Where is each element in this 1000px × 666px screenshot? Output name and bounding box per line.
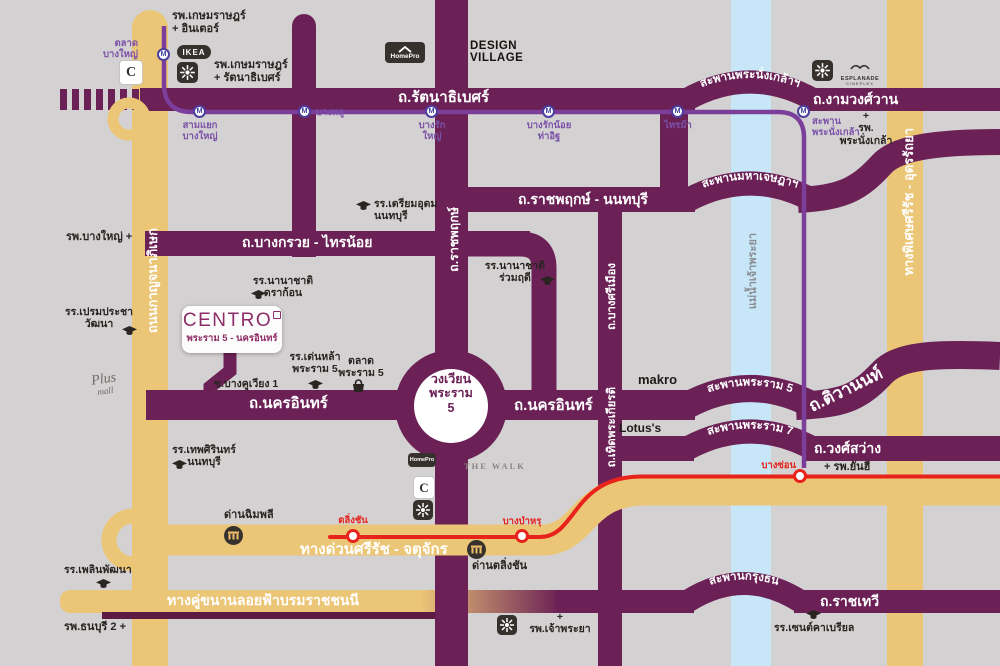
school-icon-st-gabriel [806, 610, 821, 620]
mrt-label-talad-bang-yai: ตลาด บางใหญ่ [90, 38, 138, 60]
place-makro: makro [638, 372, 677, 387]
road-label-ngamwongwan: ถ.งามวงศ์วาน [813, 91, 898, 108]
esplanade-logo-subtext: CINEPLEX [838, 82, 882, 86]
road-label-borommaratchachonnani: ทางคู่ขนานลอยฟ้าบรมราชชนนี [167, 592, 359, 609]
road-label-si-rat-chatuchak: ทางด่วนศรีรัช - จตุจักร [300, 541, 448, 559]
toll-label-taling-chan: ด่านตลิ่งชัน [472, 560, 527, 573]
school-icon-ploen-phatthana [96, 579, 111, 589]
homepro-logo: HomePro [385, 42, 425, 63]
mrt-station-icon-sai-ma: M [671, 105, 684, 118]
place-kasemrad-inter: รพ.เกษมราษฎร์ + อินเตอร์ [172, 10, 246, 36]
bridge-rama5 [686, 389, 814, 407]
mrt-station-icon-sam-yaek-bang-yai: M [193, 105, 206, 118]
central-logo-rattanathibet: C [413, 476, 435, 499]
roundabout-label: วงเวียน พระราม 5 [414, 372, 488, 415]
esplanade-wings-icon [850, 63, 870, 71]
place-lotus: Lotus's [619, 421, 661, 435]
toll-icon-taling-chan [467, 540, 486, 559]
esplanade-logo: ESPLANADE CINEPLEX [838, 58, 882, 86]
market-icon-talad-rama5 [352, 379, 365, 393]
homepro-logo-text: HomePro [391, 53, 420, 60]
road-label-ratchaphruek-nonthaburi: ถ.ราชพฤกษ์ - นนทบุรี [518, 191, 648, 208]
centralplaza-sun-icon-chao-phraya [497, 615, 517, 635]
place-st-gabriel-school: รร.เซนต์คาเบรียล [774, 622, 854, 634]
road-label-bang-kruai-sai-noi: ถ.บางกรวย - ไทรน้อย [242, 234, 372, 251]
central-westgate-logo: C [119, 60, 143, 85]
centralplaza-sun-icon-westgate [177, 62, 198, 83]
mrt-station-icon-saphan-phra-nang-klao: M [797, 105, 810, 118]
school-icon-prem-pracha [122, 326, 137, 336]
centro-brand-text: CENTRO [183, 310, 272, 331]
place-ploen-phatthana-school: รร.เพลินพัฒนา [64, 564, 132, 576]
place-triam-udom-school: รร.เตรียมอุดม นนทบุรี [374, 198, 437, 223]
road-label-bang-si-mueang: ถ.บางศรีเมือง [603, 263, 621, 330]
srt-label-bang-bamru: บางบำหรุ [490, 516, 554, 527]
srt-label-bang-son: บางซ่อน [740, 460, 796, 471]
interchange-loop-bottom [109, 516, 157, 564]
road-label-wong-sawang: ถ.วงศ์สว่าง [814, 440, 881, 457]
toll-label-chimphli: ด่านฉิมพลี [224, 509, 274, 522]
bridge-krung-thon [688, 584, 800, 602]
road-soi-bang-khu-wiang [210, 352, 230, 401]
mrt-label-bang-phlu: บางพลู [316, 107, 344, 118]
river-label: แม่น้ำเจ้าพระยา [744, 233, 762, 309]
school-icon-denla [308, 380, 323, 390]
plus-mall-logo: Plus mall [91, 372, 119, 396]
mrt-station-icon-bang-phlu: M [298, 105, 311, 118]
srt-station-icon-taling-chan [346, 529, 360, 543]
road-label-kanchanaphisek: ถนนกาญจนาภิเษก [142, 228, 163, 333]
toll-icon-chimphli [224, 526, 243, 545]
school-icon-ruamrudee [540, 276, 555, 286]
road-label-ratchathewi: ถ.ราชเทวี [820, 593, 879, 610]
road-label-si-rat-udon-ratthaya: ทางพิเศษศรีรัช - อุดรรัถยา [898, 128, 919, 276]
mrt-label-sam-yaek-bang-yai: สามแยก บางใหญ่ [172, 120, 228, 142]
centro-brand: CENTRO [182, 310, 282, 332]
mrt-label-bang-rak-yai: บางรัก ใหญ่ [406, 120, 458, 142]
school-icon-dragon [251, 290, 266, 300]
centralplaza-sun-icon-rattanathibet [812, 60, 833, 81]
road-label-nakhon-in-east: ถ.นครอินทร์ [514, 397, 593, 415]
homepro-logo-small: HomePro [408, 453, 436, 467]
srt-station-icon-bang-bamru [515, 529, 529, 543]
place-phra-nang-klao-hospital: + รพ. พระนั่งเกล้า [830, 110, 902, 147]
place-ruamrudee-school: รร.นานาชาติ ร่วมฤดี [482, 260, 548, 285]
place-thonburi2-hospital: รพ.ธนบุรี 2 + [64, 621, 126, 634]
place-talad-rama5: ตลาด พระราม 5 [338, 355, 384, 380]
road-label-soi-bang-khu-wiang: ซ.บางคูเวียง 1 [214, 378, 278, 390]
map-canvas: สะพานพระนั่งเกล้าฯ สะพานมหาเจษฎาฯ สะพานพ… [0, 0, 1000, 666]
place-denla-school: รร.เด่นหล้า พระราม 5 [286, 351, 344, 376]
mrt-label-bang-rak-noi: บางรักน้อย ท่าอิฐ [515, 120, 583, 142]
srt-label-taling-chan: ตลิ่งชัน [325, 515, 381, 526]
mrt-station-icon-bang-rak-yai: M [425, 105, 438, 118]
centro-window-icon [273, 311, 281, 319]
mrt-station-icon-talad-bang-yai: M [157, 48, 170, 61]
bridge-rama7 [688, 432, 812, 449]
mrt-station-icon-bang-rak-noi: M [542, 105, 555, 118]
road-label-ratchaphruek: ถ.ราชพฤกษ์ [444, 207, 464, 272]
centro-project-badge: CENTRO พระราม 5 - นครอินทร์ [182, 306, 282, 353]
interchange-loop-top [113, 103, 145, 135]
ikea-logo: IKEA [177, 45, 211, 59]
place-yanhee-hospital: + รพ.ยันฮี [824, 461, 870, 474]
the-walk-logo: THE WALK [464, 461, 526, 471]
homepro-roof-icon [398, 46, 412, 53]
centralplaza-sun-icon-nakhon-in [413, 500, 433, 520]
place-design-village: DESIGN VILLAGE [470, 40, 523, 64]
place-bang-yai-hospital: รพ.บางใหญ่ + [66, 231, 132, 244]
place-chao-phraya-hospital: + รพ.เจ้าพระยา [524, 611, 596, 636]
centro-subtitle: พระราม 5 - นครอินทร์ [182, 331, 282, 346]
school-icon-triam-udom [356, 201, 371, 211]
mrt-label-sai-ma: ไทรม้า [654, 120, 702, 131]
road-label-rattanathibet: ถ.รัตนาธิเบศร์ [398, 89, 489, 107]
homepro-small-text: HomePro [410, 457, 434, 463]
road-label-nakhon-in-west: ถ.นครอินทร์ [249, 395, 328, 413]
place-kasemrad-rattanathibet: รพ.เกษมราษฎร์ + รัตนาธิเบศร์ [214, 59, 288, 85]
school-icon-thep-sirin [172, 460, 187, 470]
